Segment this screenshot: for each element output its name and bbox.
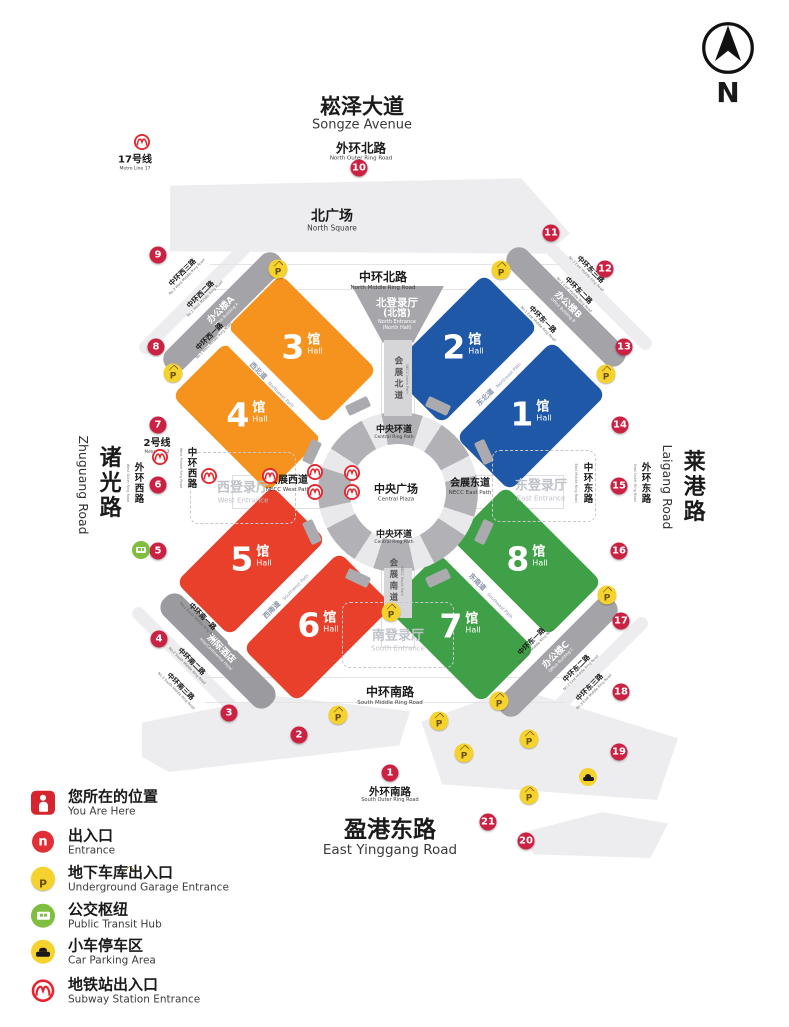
south-entrance-label: 南登录厅 South Entrance [371, 630, 425, 653]
hall-5-label: 5 馆Hall [230, 543, 271, 576]
north-middle-ring-label: 中环北路 North Middle Ring Road [351, 271, 416, 291]
hall-2-label: 2 馆Hall [442, 331, 483, 364]
legend-entrance: n 出入口Entrance [30, 827, 115, 858]
north-square-label: 北广场 North Square [307, 209, 357, 234]
songze-avenue-label: 崧泽大道 Songze Avenue [312, 94, 412, 133]
entrance-marker-9: 9 [150, 247, 167, 264]
entrance-marker-6: 6 [150, 477, 167, 494]
legend-you-are-here: 您所在的位置You Are Here [30, 788, 158, 819]
parking-garage-icon: P [329, 706, 348, 725]
entrance-marker-2: 2 [291, 727, 308, 744]
necc-south-path-label: 会展南道 [387, 558, 397, 604]
north-square-area [166, 176, 570, 256]
hall-6-label: 6 馆Hall [297, 609, 338, 642]
entrance-marker-14: 14 [612, 417, 629, 434]
entrance-marker-7: 7 [150, 417, 167, 434]
central-ring-path-label-top: 中央环道 Central Ring Path [374, 425, 413, 441]
west-middle-ring-en: West Middle Ring Road [179, 448, 183, 488]
entrance-marker-15: 15 [611, 478, 628, 495]
entrance-marker-20: 20 [518, 833, 535, 850]
parking-garage-icon: P [455, 744, 474, 763]
north-entrance-label: 北登录厅 (北馆) North Entrance (North Hall) [376, 297, 418, 331]
laigang-road-label: 莱港路 [679, 450, 704, 525]
metro-line17-label: 17号线 Metro Line 17 [118, 155, 152, 172]
hall-8-label: 8 馆Hall [506, 543, 547, 576]
car-parking-icon [31, 940, 55, 964]
subway-station-icon [262, 468, 279, 485]
entrance-marker-18: 18 [613, 684, 630, 701]
parking-garage-icon: P [269, 260, 288, 279]
entrance-marker-21: 21 [480, 814, 497, 831]
hall-4-label: 4 馆Hall [226, 399, 267, 432]
central-plaza-label: 中央广场 Central Plaza [374, 484, 418, 503]
entrance-marker-13: 13 [616, 339, 633, 356]
south-plaza-area [416, 688, 678, 800]
legend-car-parking: 小车停车区Car Parking Area [30, 937, 156, 968]
subway-station-icon [201, 468, 218, 485]
compass [700, 20, 756, 80]
compass-needle-icon [700, 20, 756, 76]
laigang-road-en: Laigang Road [660, 445, 674, 530]
entrance-marker-16: 16 [611, 543, 628, 560]
east-outer-ring-en: East Outer Ring Road [633, 464, 637, 501]
parking-garage-icon: P [164, 364, 183, 383]
entrance-marker-3: 3 [221, 705, 238, 722]
entrance-icon: n [32, 831, 54, 853]
legend-garage: P 地下车库出入口Underground Garage Entrance [30, 864, 229, 895]
zhuguang-road-en: Zhuguang Road [76, 435, 90, 534]
parking-garage-icon: P [31, 867, 55, 891]
ring-wedge [345, 396, 371, 416]
subway-station-icon [344, 484, 361, 501]
parking-garage-icon: P [520, 730, 539, 749]
necc-south-path-en: NECC South Path [400, 566, 404, 596]
entrance-marker-5: 5 [150, 543, 167, 560]
subway-station-icon [307, 464, 324, 481]
subway-station-icon [134, 134, 151, 151]
car-parking-icon [579, 768, 597, 786]
parking-garage-icon: P [520, 786, 539, 805]
southwest-plaza-area [142, 696, 410, 772]
east-middle-ring-label: 中环东路 [581, 462, 592, 504]
necc-campus-map: 崧泽大道 Songze Avenue 外环北路 North Outer Ring… [0, 0, 789, 1027]
parking-garage-icon: P [490, 692, 509, 711]
parking-garage-icon: P [382, 603, 401, 622]
legend-subway: 地铁站出入口Subway Station Entrance [30, 976, 200, 1007]
necc-east-path-label: 会展东道 NECC East Path [449, 478, 492, 496]
subway-station-icon [152, 449, 169, 466]
central-ring-path-label-bottom: 中央环道 Central Ring Path [374, 530, 413, 546]
west-outer-ring-en: West Outer Ring Road [126, 464, 130, 503]
necc-north-path-en: NECC North Path [405, 364, 409, 393]
hall-3-label: 3 馆Hall [281, 331, 322, 364]
entrance-marker-1: 1 [382, 765, 399, 782]
south-outer-ring-label: 外环南路 South Outer Ring Road [361, 786, 418, 804]
necc-north-path-label: 会展北道 [392, 356, 402, 402]
entrance-marker-17: 17 [613, 613, 630, 630]
parking-garage-icon: P [430, 712, 449, 731]
parking-garage-icon: P [597, 365, 616, 384]
legend-transit-hub: 公交枢纽Public Transit Hub [30, 901, 162, 932]
yinggang-road-label: 盈港东路 East Yinggang Road [323, 817, 457, 859]
hall-7-label: 7 馆Hall [439, 610, 480, 643]
entrance-marker-8: 8 [148, 339, 165, 356]
subway-station-icon [31, 979, 55, 1003]
east-middle-ring-en: East Middle Ring Road [574, 463, 578, 502]
bus-hub-icon [132, 541, 150, 559]
entrance-marker-19: 19 [611, 744, 628, 761]
you-are-here-icon [31, 791, 55, 815]
east-outer-ring-label: 外环东路 [639, 462, 650, 504]
zhuguang-road-label: 诸光路 [95, 446, 120, 521]
subway-station-icon [344, 465, 361, 482]
east-entrance-label: 东登录厅 East Entrance [515, 480, 567, 503]
subway-station-icon [307, 484, 324, 501]
southeast-lot-area [522, 812, 668, 858]
parking-garage-icon: P [598, 586, 617, 605]
bus-hub-icon [31, 904, 55, 928]
entrance-marker-10: 10 [351, 160, 368, 177]
entrance-marker-11: 11 [543, 225, 560, 242]
compass-north-letter: N [716, 77, 739, 109]
entrance-marker-12: 12 [597, 261, 614, 278]
west-entrance-label: 西登录厅 West Entrance [217, 482, 269, 505]
west-middle-ring-label: 中环西路 [185, 447, 196, 489]
entrance-marker-4: 4 [151, 631, 168, 648]
hall-1-label: 1 馆Hall [510, 398, 551, 431]
south-middle-ring-label: 中环南路 South Middle Ring Road [357, 686, 423, 706]
parking-garage-icon: P [492, 261, 511, 280]
west-outer-ring-label: 外环西路 [132, 462, 143, 504]
